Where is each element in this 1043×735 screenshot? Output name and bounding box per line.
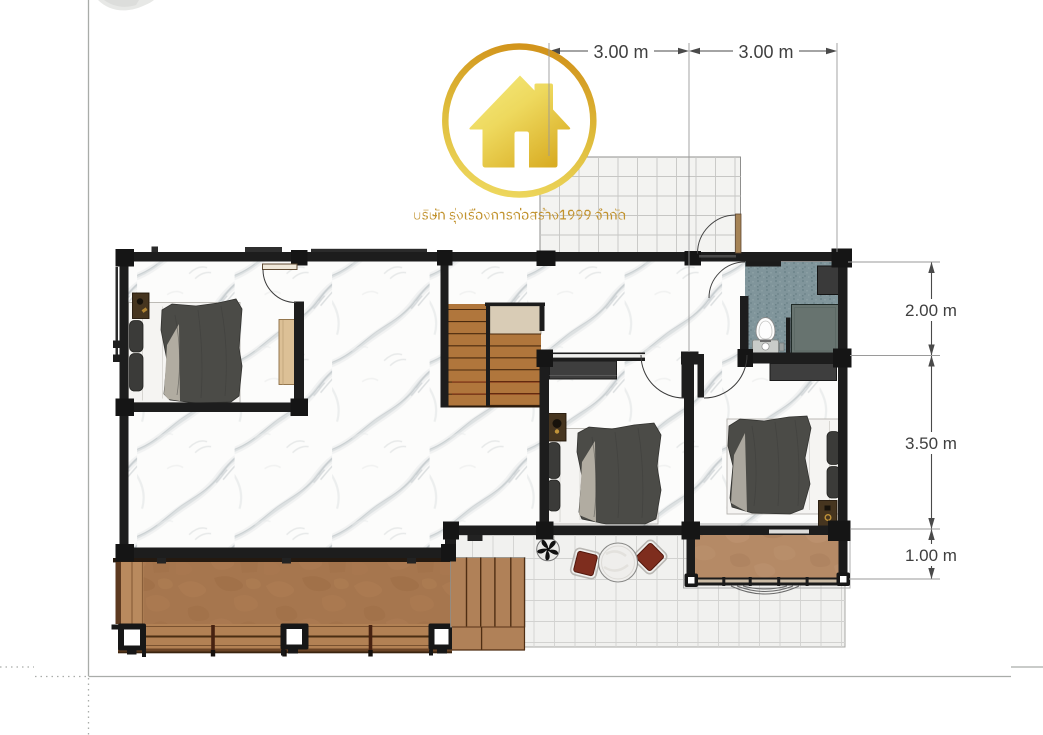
svg-text:3.00 m: 3.00 m <box>738 42 793 62</box>
svg-text:3.50 m: 3.50 m <box>905 434 957 453</box>
svg-text:3.00 m: 3.00 m <box>593 42 648 62</box>
svg-text:1.00 m: 1.00 m <box>905 546 957 565</box>
svg-text:2.00 m: 2.00 m <box>905 301 957 320</box>
